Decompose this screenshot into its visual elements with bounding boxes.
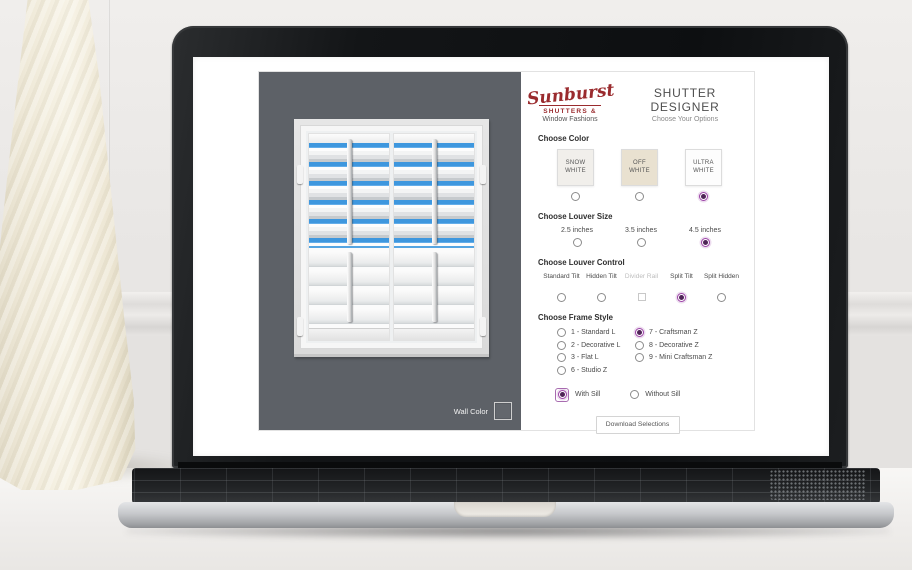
hinge-icon — [480, 317, 486, 336]
louver-size-options: 2.5 inches 3.5 inches 4.5 inches — [555, 227, 754, 247]
frame-style-label: 3 - Flat L — [571, 354, 599, 361]
shutter-designer-app: Wall Color Sunburst SHUTTERS & Window Fa… — [258, 71, 755, 431]
frame-style-label: 9 - Mini Craftsman Z — [649, 354, 712, 361]
frame-style-6-radio[interactable] — [557, 366, 566, 375]
closed-louvers — [394, 246, 474, 328]
choose-louver-control-heading: Choose Louver Control — [538, 258, 754, 267]
wall-color-label: Wall Color — [454, 407, 488, 416]
louver-size-label: 4.5 inches — [689, 227, 721, 234]
control-label: Split Tilt — [670, 273, 693, 290]
sill-options: With Sill Without Sill — [555, 388, 754, 402]
color-option-snow-white: SNOW WHITE — [557, 149, 594, 201]
louver-size-4-5-radio[interactable] — [701, 238, 710, 247]
frame-style-9-mini-craftsman-z: 9 - Mini Craftsman Z — [635, 353, 712, 362]
tilt-rod — [347, 139, 352, 244]
frame-style-right-column: 7 - Craftsman Z 8 - Decorative Z 9 - Min… — [635, 328, 712, 375]
standard-tilt-radio[interactable] — [557, 293, 566, 302]
window-casing — [294, 119, 489, 357]
snow-white-radio[interactable] — [571, 192, 580, 201]
frame-style-1-radio[interactable] — [557, 328, 566, 337]
snow-white-swatch[interactable]: SNOW WHITE — [557, 149, 594, 186]
off-white-radio[interactable] — [635, 192, 644, 201]
control-label: Standard Tilt — [543, 273, 580, 290]
frame-style-2-decorative-l: 2 - Decorative L — [557, 341, 635, 350]
tilt-rod — [432, 252, 437, 322]
panel-bottom-rail — [394, 328, 474, 340]
frame-style-label: 2 - Decorative L — [571, 342, 620, 349]
control-label: Split Hidden — [704, 273, 739, 290]
open-louvers — [309, 143, 389, 246]
louver-size-2-5: 2.5 inches — [555, 227, 599, 247]
sill-option-with: With Sill — [555, 388, 600, 402]
choose-frame-style-heading: Choose Frame Style — [538, 313, 754, 322]
frame-style-1-standard-l: 1 - Standard L — [557, 328, 635, 337]
laptop-speaker-grille — [770, 470, 866, 500]
page-subtitle: Choose Your Options — [622, 116, 748, 123]
frame-style-label: 1 - Standard L — [571, 329, 615, 336]
ultra-white-swatch[interactable]: ULTRA WHITE — [685, 149, 722, 186]
louver-size-2-5-radio[interactable] — [573, 238, 582, 247]
frame-style-8-decorative-z: 8 - Decorative Z — [635, 341, 712, 350]
wall-color-control: Wall Color — [454, 402, 512, 420]
with-sill-focus-ring — [555, 388, 569, 402]
choose-color-heading: Choose Color — [538, 134, 754, 143]
sill-option-without: Without Sill — [630, 390, 680, 399]
app-title-block: SHUTTER DESIGNER Choose Your Options — [622, 86, 748, 123]
with-sill-radio[interactable] — [558, 390, 567, 399]
frame-style-label: 8 - Decorative Z — [649, 342, 699, 349]
louver-size-4-5: 4.5 inches — [683, 227, 727, 247]
shutter-preview-pane: Wall Color — [259, 72, 521, 430]
frame-style-options: 1 - Standard L 2 - Decorative L 3 - Flat… — [557, 328, 754, 375]
louver-size-3-5: 3.5 inches — [619, 227, 663, 247]
color-option-ultra-white: ULTRA WHITE — [685, 149, 722, 201]
logo-window-fashions-text: Window Fashions — [527, 116, 613, 123]
frame-style-label: 7 - Craftsman Z — [649, 329, 698, 336]
choose-louver-size-heading: Choose Louver Size — [538, 212, 754, 221]
shutter-panel-right — [393, 133, 475, 341]
sunburst-logo: Sunburst SHUTTERS & Window Fashions — [527, 87, 613, 123]
control-split-tilt: Split Tilt — [663, 273, 700, 302]
without-sill-radio[interactable] — [630, 390, 639, 399]
tilt-rod — [432, 139, 437, 244]
louver-control-options: Standard Tilt Hidden Tilt Divider Rail S… — [543, 273, 754, 302]
frame-style-2-radio[interactable] — [557, 341, 566, 350]
louver-size-3-5-radio[interactable] — [637, 238, 646, 247]
tilt-rod — [347, 252, 352, 322]
control-divider-rail: Divider Rail — [623, 273, 660, 302]
page-title: SHUTTER DESIGNER — [622, 86, 748, 114]
ultra-white-radio[interactable] — [699, 192, 708, 201]
hinge-icon — [297, 165, 303, 184]
sill-label: With Sill — [575, 391, 600, 398]
frame-style-3-radio[interactable] — [557, 353, 566, 362]
hinge-icon — [297, 317, 303, 336]
frame-style-8-radio[interactable] — [635, 341, 644, 350]
frame-style-7-radio[interactable] — [635, 328, 644, 337]
frame-style-label: 6 - Studio Z — [571, 367, 607, 374]
download-selections-button[interactable]: Download Selections — [596, 416, 680, 434]
frame-style-left-column: 1 - Standard L 2 - Decorative L 3 - Flat… — [557, 328, 635, 375]
frame-style-9-radio[interactable] — [635, 353, 644, 362]
laptop-lid-notch — [454, 502, 556, 517]
closed-louvers — [309, 246, 389, 328]
off-white-swatch[interactable]: OFF WHITE — [621, 149, 658, 186]
split-hidden-radio[interactable] — [717, 293, 726, 302]
divider-rail-checkbox — [638, 293, 646, 301]
control-split-hidden: Split Hidden — [703, 273, 740, 302]
laptop-keyboard — [132, 468, 880, 504]
hinge-icon — [480, 165, 486, 184]
laptop-screen: Wall Color Sunburst SHUTTERS & Window Fa… — [193, 57, 829, 456]
control-label: Divider Rail — [625, 273, 658, 290]
louver-size-label: 3.5 inches — [625, 227, 657, 234]
logo-shutters-text: SHUTTERS & — [527, 108, 613, 115]
shutter-frame — [301, 126, 482, 348]
frame-style-7-craftsman-z: 7 - Craftsman Z — [635, 328, 712, 337]
hidden-tilt-radio[interactable] — [597, 293, 606, 302]
control-hidden-tilt: Hidden Tilt — [583, 273, 620, 302]
panel-bottom-rail — [309, 328, 389, 340]
wall-color-swatch[interactable] — [494, 402, 512, 420]
split-tilt-radio[interactable] — [677, 293, 686, 302]
color-options: SNOW WHITE OFF WHITE ULTRA WHITE — [557, 149, 754, 201]
frame-style-6-studio-z: 6 - Studio Z — [557, 366, 635, 375]
color-option-off-white: OFF WHITE — [621, 149, 658, 201]
louver-size-label: 2.5 inches — [561, 227, 593, 234]
frame-style-3-flat-l: 3 - Flat L — [557, 353, 635, 362]
options-pane: Sunburst SHUTTERS & Window Fashions SHUT… — [521, 72, 754, 430]
open-louvers — [394, 143, 474, 246]
control-label: Hidden Tilt — [586, 273, 617, 290]
sill-label: Without Sill — [645, 391, 680, 398]
brand-header: Sunburst SHUTTERS & Window Fashions SHUT… — [527, 86, 748, 123]
control-standard-tilt: Standard Tilt — [543, 273, 580, 302]
scene: Wall Color Sunburst SHUTTERS & Window Fa… — [0, 0, 912, 570]
shutter-panel-left — [308, 133, 390, 341]
